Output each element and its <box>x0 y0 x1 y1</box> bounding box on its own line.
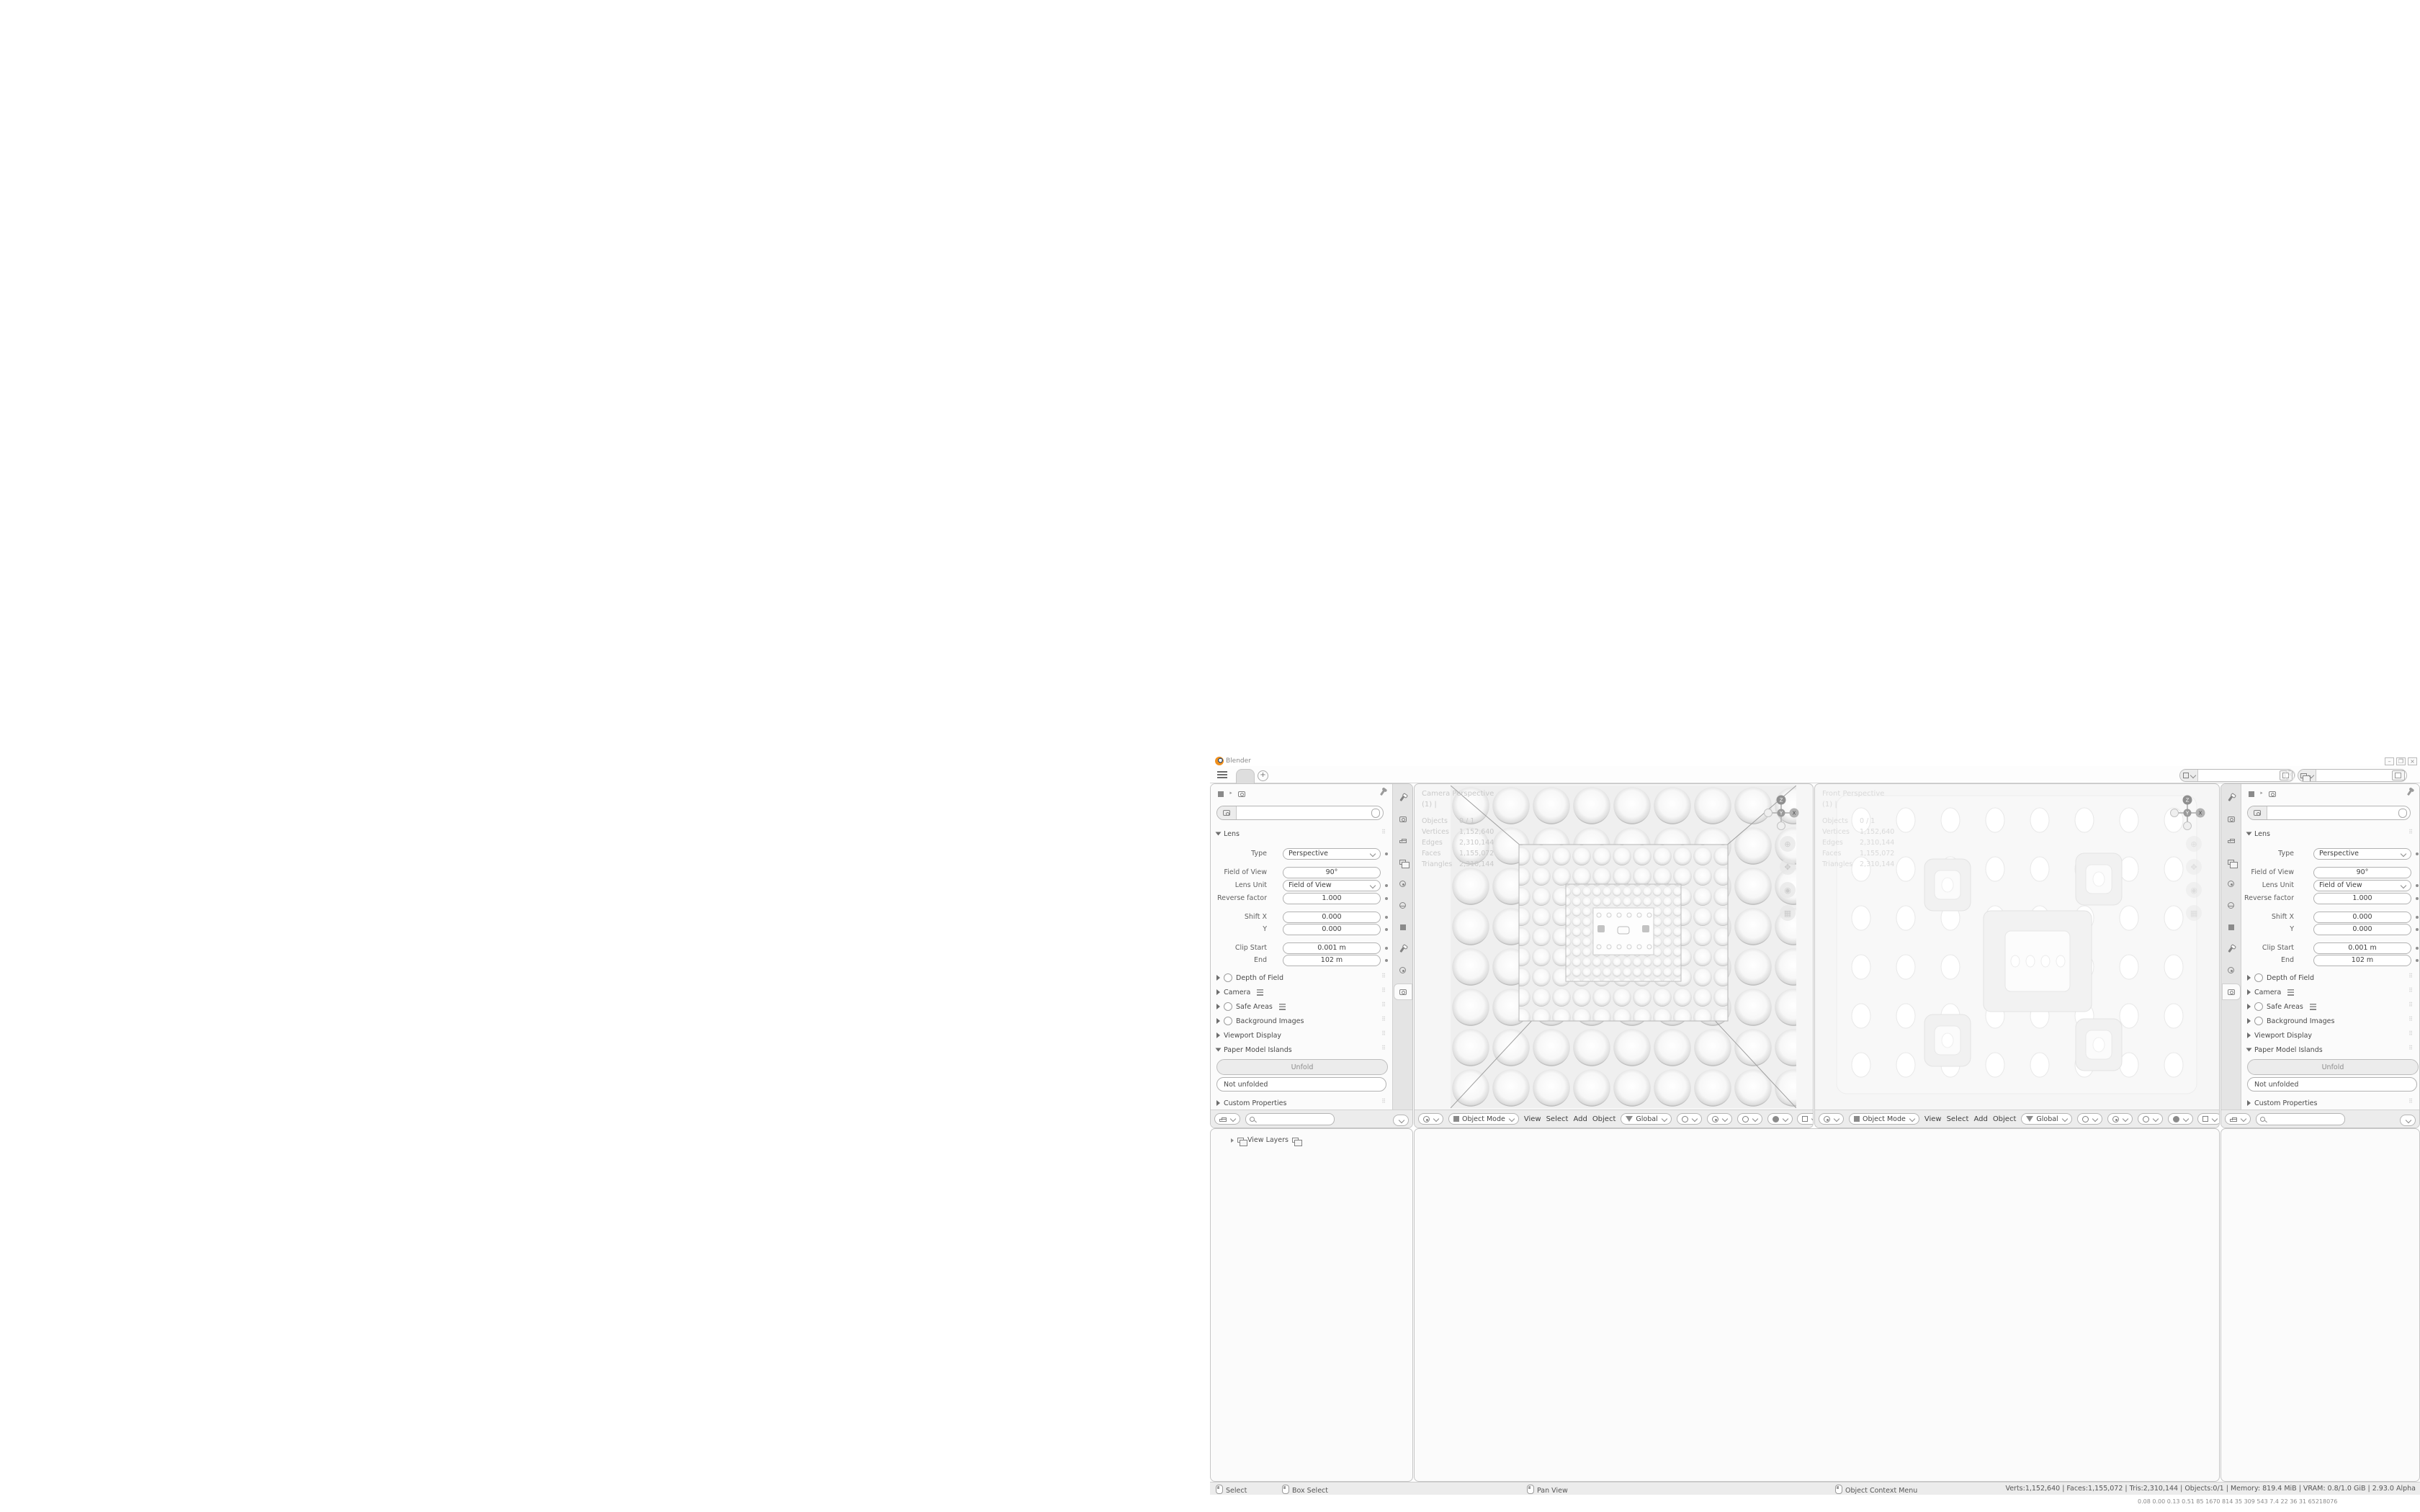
properties-tab-strip <box>2221 784 2241 1110</box>
camera-view-button-glyph: ◉ <box>2190 886 2197 895</box>
camera-data-icon <box>2269 791 2276 797</box>
expand-icon <box>2246 832 2252 836</box>
orientation-icon <box>1626 1116 1633 1122</box>
prop-label: Y <box>2241 925 2294 933</box>
workspace-tab[interactable] <box>1236 769 1255 784</box>
scene-selector[interactable] <box>2179 769 2295 782</box>
grid-ortho-button[interactable]: ▦ <box>2186 905 2202 921</box>
prop-label: Reverse factor <box>1211 894 1267 902</box>
prop-field-end[interactable]: 102 m <box>2313 955 2411 966</box>
properties-tab-output[interactable] <box>1394 833 1412 848</box>
unlink-scene-button[interactable]: × <box>2285 770 2295 780</box>
search-icon <box>2260 1117 2265 1122</box>
expand-icon <box>2247 1018 2251 1024</box>
properties-tab-object-data[interactable] <box>1394 984 1412 999</box>
orientation-label: Global <box>1636 1115 1657 1123</box>
prop-row-end: End102 m <box>2241 954 2409 966</box>
prop-label: End <box>2241 956 2294 964</box>
prop-field-field-of-view[interactable]: 90° <box>1283 867 1381 878</box>
animate-dot[interactable] <box>1385 884 1388 887</box>
prop-label: Clip Start <box>1211 944 1267 952</box>
stat-name: Triangles <box>1822 859 1860 870</box>
stat-name: Vertices <box>1822 827 1860 837</box>
animate-dot[interactable] <box>1385 916 1388 919</box>
editor-type-button[interactable] <box>1819 1113 1844 1125</box>
viewport-statistics: Objects0 / 1Vertices1,152,640Edges2,310,… <box>1422 816 1494 870</box>
mode-selector[interactable]: Object Mode <box>1448 1113 1519 1125</box>
drag-dots-icon: ⠿ <box>1381 1045 1386 1051</box>
panel-menu-icon[interactable] <box>2310 1004 2316 1010</box>
orientation-label: Global <box>2036 1115 2058 1123</box>
panel-checkbox[interactable] <box>2254 973 2263 982</box>
prop-row-type: TypePerspective <box>1211 847 1382 860</box>
view-layer-selector[interactable] <box>2298 769 2407 782</box>
prop-value: 0.000 <box>1322 925 1341 933</box>
panel-label: Depth of Field <box>2267 974 2314 982</box>
prop-label: Y <box>1211 925 1267 933</box>
quadrant-mirror-horizontal <box>0 756 1210 1512</box>
properties-tab-constraints[interactable] <box>1394 941 1412 956</box>
animate-dot[interactable] <box>2416 884 2419 887</box>
shader-node-editor <box>1414 1128 2220 1482</box>
properties-header <box>1211 1110 1412 1128</box>
prop-label: Type <box>1211 850 1267 858</box>
prop-field-end[interactable]: 102 m <box>1283 955 1381 966</box>
prop-field-reverse-factor[interactable]: 1.000 <box>1283 893 1381 904</box>
hint-pan-view: Pan View <box>1527 1485 1568 1495</box>
panel-menu-icon[interactable] <box>1279 1004 1286 1010</box>
scene-icon <box>2228 881 2234 887</box>
prop-row-type: TypePerspective <box>2241 847 2409 860</box>
scene-icon <box>1399 881 1406 887</box>
properties-tab-physics[interactable] <box>1394 963 1412 978</box>
properties-tab-scene[interactable] <box>2223 876 2240 891</box>
topbar: + × <box>1210 766 2420 783</box>
prop-field-reverse-factor[interactable]: 1.000 <box>2313 893 2411 904</box>
pivot-point-button-icon <box>1742 1116 1749 1122</box>
properties-tab-tool[interactable] <box>1394 790 1412 805</box>
animate-dot[interactable] <box>1385 959 1388 962</box>
object-icon <box>2228 924 2234 930</box>
stat-name: Edges <box>1422 837 1459 848</box>
outliner-label: View Layers <box>1247 1136 1289 1144</box>
camera-data-id-field[interactable] <box>1216 806 1384 820</box>
prop-field-y[interactable]: 0.000 <box>1283 924 1381 935</box>
prop-field-lens-unit[interactable]: Field of View <box>2313 880 2411 891</box>
view-object-types-button-icon <box>2202 1116 2208 1122</box>
expand-icon <box>1216 1048 1222 1052</box>
pan-hand-button[interactable]: ✥ <box>1780 859 1796 875</box>
prop-label: Clip Start <box>2241 944 2294 952</box>
unfold-status-field: Not unfolded <box>1216 1077 1386 1092</box>
properties-tab-object-data[interactable] <box>2223 984 2240 999</box>
properties-tab-world[interactable] <box>1394 898 1412 913</box>
close-button[interactable]: × <box>2408 757 2417 765</box>
menu-object[interactable]: Object <box>1592 1115 1616 1123</box>
viewport-canvas[interactable]: Camera Perspective(1) |Objects0 / 1Verti… <box>1415 784 1813 1110</box>
output-icon <box>1399 840 1407 843</box>
stat-line: Faces1,155,072 <box>1422 848 1494 859</box>
breadcrumb-arrow: ‣ <box>1229 790 1233 798</box>
proportional-editing-toggle[interactable] <box>1707 1113 1732 1125</box>
prop-row-clip-start: Clip Start0.001 m <box>1211 942 1382 954</box>
stat-value: 0 / 1 <box>1860 817 1875 825</box>
pin-icon[interactable] <box>2408 790 2411 798</box>
world-icon <box>1399 902 1406 909</box>
pivot-point-button-icon <box>2143 1116 2149 1122</box>
prop-row-clip-start: Clip Start0.001 m <box>2241 942 2409 954</box>
drag-dots-icon: ⠿ <box>2408 829 2414 835</box>
panel-depth-of-field[interactable]: Depth of Field <box>2247 973 2314 983</box>
editor-type-button[interactable] <box>1418 1113 1443 1125</box>
animate-dot[interactable] <box>2416 959 2419 962</box>
options-button[interactable] <box>2400 1112 2416 1126</box>
panel-depth-of-field[interactable]: Depth of Field <box>1216 973 1283 983</box>
properties-tab-tool[interactable] <box>2223 790 2240 805</box>
constraints-icon <box>1400 945 1406 953</box>
properties-tab-world[interactable] <box>2223 898 2240 913</box>
panel-label: Paper Model Islands <box>2254 1046 2323 1054</box>
pivot-point-button[interactable] <box>2138 1113 2163 1125</box>
object-data-icon <box>2228 989 2235 995</box>
orientation-icon <box>2026 1116 2033 1122</box>
prop-row-lens-unit: Lens UnitField of View <box>1211 879 1382 891</box>
menu-view[interactable]: View <box>1524 1115 1541 1123</box>
outliner-content: View Layers <box>1211 1129 1412 1481</box>
prop-row-shift-x: Shift X0.000 <box>1211 911 1382 923</box>
world-icon <box>2228 902 2234 909</box>
drag-dots-icon: ⠿ <box>1381 1016 1386 1022</box>
expand-icon <box>1216 989 1220 995</box>
stat-value: 2,310,144 <box>1860 839 1894 847</box>
prop-value: 102 m <box>2352 956 2373 964</box>
scene-icon <box>2180 770 2198 781</box>
shading-button[interactable] <box>2168 1113 2193 1125</box>
object-icon <box>1400 924 1406 930</box>
properties-tab-view-layer[interactable] <box>1394 855 1412 870</box>
panel-label: Camera <box>2254 989 2281 996</box>
camera-view-button[interactable]: ◉ <box>2186 882 2202 898</box>
expand-icon <box>1216 1032 1220 1038</box>
panel-background-images[interactable]: Background Images <box>2247 1016 2334 1026</box>
camera-view-button[interactable]: ◉ <box>1780 882 1796 898</box>
prop-value: Perspective <box>2319 850 2359 858</box>
panel-safe-areas[interactable]: Safe Areas <box>2247 1002 2316 1012</box>
navigation-gizmo[interactable]: ZXY <box>1761 793 1801 833</box>
prop-field-type[interactable]: Perspective <box>1283 848 1381 860</box>
restore-button[interactable]: ❐ <box>2396 757 2406 765</box>
panel-paper-model-islands[interactable]: Paper Model Islands <box>2247 1045 2323 1055</box>
animate-dot[interactable] <box>1385 947 1388 950</box>
pivot-point-button[interactable] <box>1737 1113 1762 1125</box>
properties-editor-left: ‣Lens⠿TypePerspectiveField of View90°Len… <box>1210 783 1413 1128</box>
stat-line: Faces1,155,072 <box>1822 848 1894 859</box>
tool-icon <box>1400 794 1406 801</box>
proportional-editing-toggle-icon <box>2112 1116 2119 1122</box>
svg-text:Z: Z <box>1780 798 1783 804</box>
quadrant-mirror-vertical <box>1210 0 2420 756</box>
prop-label: Type <box>2241 850 2294 858</box>
editor-type-button[interactable] <box>2225 1113 2251 1125</box>
prop-row-field-of-view: Field of View90° <box>2241 866 2409 878</box>
panel-checkbox[interactable] <box>1224 1002 1232 1011</box>
render-icon <box>2228 816 2235 822</box>
properties-tab-render[interactable] <box>1394 811 1412 827</box>
drag-dots-icon: ⠿ <box>1381 829 1386 835</box>
menu-add[interactable]: Add <box>1973 1115 1987 1123</box>
scene-statistics: Verts:1,152,640 | Faces:1,155,072 | Tris… <box>2005 1485 2416 1493</box>
panel-checkbox[interactable] <box>2254 1002 2263 1011</box>
viewport-collection-label: (1) | <box>1422 799 1494 810</box>
zoom-button-glyph: ⊕ <box>2190 840 2197 849</box>
navigation-gizmo[interactable]: ZXY <box>2167 793 2208 833</box>
stat-name: Triangles <box>1422 859 1459 870</box>
status-bar: Select Box Select Pan View Object Contex… <box>1210 1482 2420 1495</box>
viewport-view-label: Camera Perspective <box>1422 788 1494 799</box>
panel-checkbox[interactable] <box>1224 1017 1232 1025</box>
expand-icon <box>2247 1004 2251 1009</box>
expand-icon <box>2247 989 2251 995</box>
stat-line: Objects0 / 1 <box>1822 816 1894 827</box>
properties-search-input[interactable] <box>1245 1113 1335 1125</box>
tool-icon <box>2228 794 2234 801</box>
zoom-button[interactable]: ⊕ <box>2186 836 2202 852</box>
menu-hamburger-icon[interactable] <box>1217 771 1227 778</box>
snapping-toggle[interactable] <box>1677 1113 1702 1125</box>
new-view-layer-button[interactable] <box>2392 770 2405 780</box>
panel-viewport-display[interactable]: Viewport Display <box>1216 1030 1281 1040</box>
prop-value: 0.001 m <box>2348 944 2376 952</box>
camera-data-icon <box>1238 791 1245 797</box>
proportional-editing-toggle[interactable] <box>2107 1113 2133 1125</box>
pan-hand-button[interactable]: ✥ <box>2186 859 2202 875</box>
hint-select: Select <box>1216 1485 1247 1495</box>
panel-label: Paper Model Islands <box>1224 1046 1292 1054</box>
orientation-selector[interactable]: Global <box>2021 1113 2071 1125</box>
properties-tab-physics[interactable] <box>2223 963 2240 978</box>
object-data-icon <box>1399 989 1407 995</box>
mode-selector[interactable]: Object Mode <box>1849 1113 1919 1125</box>
panel-label: Camera <box>1224 989 1250 996</box>
properties-tab-render[interactable] <box>2223 811 2240 827</box>
animate-dot[interactable] <box>2416 928 2419 931</box>
prop-row-lens-unit: Lens UnitField of View <box>2241 879 2409 891</box>
prop-field-type[interactable]: Perspective <box>2313 848 2411 860</box>
viewport-camera: Camera Perspective(1) |Objects0 / 1Verti… <box>1414 783 1814 1128</box>
zoom-button[interactable]: ⊕ <box>1780 836 1796 852</box>
prop-value: 0.000 <box>1322 913 1341 921</box>
fake-user-icon <box>2398 809 2407 818</box>
panel-paper-model-islands[interactable]: Paper Model Islands <box>1216 1045 1292 1055</box>
expand-icon <box>2247 975 2251 981</box>
stat-name: Faces <box>1822 848 1860 859</box>
blender-logo-icon <box>1215 757 1224 765</box>
properties-tab-output[interactable] <box>2223 833 2240 848</box>
properties-tab-strip <box>1392 784 1412 1110</box>
panel-viewport-display[interactable]: Viewport Display <box>2247 1030 2312 1040</box>
drag-dots-icon: ⠿ <box>2408 1030 2414 1037</box>
prop-field-clip-start[interactable]: 0.001 m <box>2313 942 2411 954</box>
drag-dots-icon: ⠿ <box>1381 1002 1386 1008</box>
output-icon <box>2228 840 2235 843</box>
prop-value: 90° <box>2357 868 2369 876</box>
physics-icon <box>1399 967 1406 973</box>
system-monitor-text: 0.08 0.00 0.13 0.51 85 1670 814 35 309 5… <box>2138 1498 2337 1505</box>
render-icon <box>1399 816 1407 822</box>
panel-lens[interactable]: Lens <box>1216 829 1240 839</box>
panel-background-images[interactable]: Background Images <box>1216 1016 1304 1026</box>
prop-row-y: Y0.000 <box>2241 923 2409 935</box>
expand-icon <box>1216 832 1222 836</box>
editor-type-button[interactable] <box>1214 1113 1240 1125</box>
grid-ortho-button[interactable]: ▦ <box>1780 905 1796 921</box>
panel-camera[interactable]: Camera <box>1216 987 1263 997</box>
panel-label: Depth of Field <box>1236 974 1283 982</box>
view-object-types-button-icon <box>1802 1116 1808 1122</box>
panel-custom-properties[interactable]: Custom Properties <box>1216 1098 1286 1108</box>
drag-dots-icon: ⠿ <box>1381 987 1386 994</box>
animate-dot[interactable] <box>1385 897 1388 900</box>
stat-value: 1,155,072 <box>1860 850 1894 858</box>
panel-label: Custom Properties <box>1224 1099 1286 1107</box>
fake-user-icon <box>1371 809 1380 818</box>
mode-label: Object Mode <box>1863 1115 1906 1123</box>
prop-field-shift-x[interactable]: 0.000 <box>2313 912 2411 923</box>
prop-row-end: End102 m <box>1211 954 1382 966</box>
unfold-status-field: Not unfolded <box>2247 1077 2417 1092</box>
view-object-types-button[interactable] <box>1797 1113 1814 1125</box>
object-mode-icon <box>1453 1116 1459 1122</box>
unfold-button[interactable]: Unfold <box>2247 1059 2419 1075</box>
viewport-overlay-text: Front Perspective(1) |Objects0 / 1Vertic… <box>1822 788 1894 870</box>
stat-line: Objects0 / 1 <box>1422 816 1494 827</box>
object-icon <box>2249 791 2254 797</box>
prop-label: Field of View <box>1211 868 1267 876</box>
physics-icon <box>2228 967 2234 973</box>
menu-select[interactable]: Select <box>1947 1115 1969 1123</box>
expand-icon <box>2247 1100 2251 1106</box>
panel-label: Safe Areas <box>1236 1003 1273 1011</box>
animate-dot[interactable] <box>1385 852 1388 855</box>
view-layer-icon <box>1399 860 1406 865</box>
menu-view[interactable]: View <box>1924 1115 1942 1123</box>
animate-dot[interactable] <box>2416 852 2419 855</box>
prop-field-clip-start[interactable]: 0.001 m <box>1283 942 1381 954</box>
outliner-row-view-layers[interactable]: View Layers <box>1211 1134 1412 1146</box>
prop-field-field-of-view[interactable]: 90° <box>2313 867 2411 878</box>
minimize-button[interactable]: – <box>2385 757 2394 765</box>
options-button[interactable] <box>1393 1112 1409 1126</box>
prop-row-shift-x: Shift X0.000 <box>2241 911 2409 923</box>
prop-label: Lens Unit <box>2241 881 2294 889</box>
prop-value: 1.000 <box>2352 894 2372 902</box>
pan-hand-button-glyph: ✥ <box>1784 863 1791 872</box>
properties-tab-object[interactable] <box>2223 919 2240 935</box>
prop-field-y[interactable]: 0.000 <box>2313 924 2411 935</box>
panel-lens[interactable]: Lens <box>2247 829 2270 839</box>
stat-value: 2,310,144 <box>1459 839 1494 847</box>
mode-label: Object Mode <box>1462 1115 1505 1123</box>
menu-object[interactable]: Object <box>1993 1115 2017 1123</box>
svg-text:Y: Y <box>1779 811 1783 816</box>
window-controls: – ❐ × <box>2385 757 2417 765</box>
animate-dot[interactable] <box>2416 916 2419 919</box>
view-layer-icon <box>1237 1138 1244 1143</box>
unfold-button[interactable]: Unfold <box>1216 1059 1388 1075</box>
pan-hand-button-glyph: ✥ <box>2190 863 2197 872</box>
prop-label: Shift X <box>1211 913 1267 921</box>
prop-label: Lens Unit <box>1211 881 1267 889</box>
zoom-button-glyph: ⊕ <box>1784 840 1791 849</box>
orientation-selector[interactable]: Global <box>1621 1113 1671 1125</box>
prop-field-lens-unit[interactable]: Field of View <box>1283 880 1381 891</box>
drag-dots-icon: ⠿ <box>2408 1098 2414 1104</box>
quadrant-mirror-both <box>0 0 1210 756</box>
stat-name: Edges <box>1822 837 1860 848</box>
properties-tab-view-layer[interactable] <box>2223 855 2240 870</box>
panel-custom-properties[interactable]: Custom Properties <box>2247 1098 2317 1108</box>
view-layer-button-icon <box>1292 1138 1299 1143</box>
stat-line: Triangles2,310,144 <box>1822 859 1894 870</box>
snapping-toggle-icon <box>2082 1116 2089 1122</box>
panel-camera[interactable]: Camera <box>2247 987 2294 997</box>
panel-menu-icon[interactable] <box>2287 989 2294 996</box>
search-icon <box>1250 1117 1255 1122</box>
properties-tab-constraints[interactable] <box>2223 941 2240 956</box>
stat-line: Edges2,310,144 <box>1422 837 1494 848</box>
menu-add[interactable]: Add <box>1573 1115 1587 1123</box>
properties-header <box>2221 1110 2419 1128</box>
properties-tab-object[interactable] <box>1394 919 1412 935</box>
shading-button[interactable] <box>1767 1113 1793 1125</box>
panel-checkbox[interactable] <box>1224 973 1232 982</box>
outliner-left: View Layers <box>1210 1128 1413 1482</box>
prop-value: Field of View <box>2319 881 2362 889</box>
viewport-canvas[interactable]: Front Perspective(1) |Objects0 / 1Vertic… <box>1815 784 2219 1110</box>
expand-icon <box>1216 1004 1220 1009</box>
proportional-editing-toggle-icon <box>1712 1116 1718 1122</box>
properties-tab-scene[interactable] <box>1394 876 1412 891</box>
properties-editor-right: ‣Lens⠿TypePerspectiveField of View90°Len… <box>2220 783 2420 1128</box>
viewport-header: Object ModeViewSelectAddObjectGlobal <box>1415 1110 1813 1128</box>
svg-text:X: X <box>2199 811 2202 816</box>
object-mode-icon <box>1854 1116 1860 1122</box>
animate-dot[interactable] <box>1385 928 1388 931</box>
snapping-toggle[interactable] <box>2077 1113 2102 1125</box>
viewport-front: Front Perspective(1) |Objects0 / 1Vertic… <box>1814 783 2220 1128</box>
editor-type-button-icon <box>1824 1116 1830 1122</box>
panel-menu-icon[interactable] <box>1257 989 1263 996</box>
stat-line: Vertices1,152,640 <box>1422 827 1494 837</box>
prop-value: 0.001 m <box>1317 944 1345 952</box>
add-workspace-button[interactable]: + <box>1258 770 1268 781</box>
view-object-types-button[interactable] <box>2197 1113 2220 1125</box>
prop-field-shift-x[interactable]: 0.000 <box>1283 912 1381 923</box>
panel-safe-areas[interactable]: Safe Areas <box>1216 1002 1286 1012</box>
menu-select[interactable]: Select <box>1546 1115 1569 1123</box>
panel-checkbox[interactable] <box>2254 1017 2263 1025</box>
animate-dot[interactable] <box>2416 947 2419 950</box>
properties-search-input[interactable] <box>2256 1113 2345 1125</box>
quadrant-original: Blender – ❐ × + × <box>1210 756 2420 1512</box>
expand-icon <box>2247 1032 2251 1038</box>
desktop-taskbar-strip: 0.08 0.00 0.13 0.51 85 1670 814 35 309 5… <box>1210 1495 2420 1512</box>
outliner-right <box>2220 1128 2420 1482</box>
camera-data-id-field[interactable] <box>2247 806 2411 820</box>
pin-icon[interactable] <box>1381 790 1384 798</box>
animate-dot[interactable] <box>2416 897 2419 900</box>
header-right-group <box>1767 1113 1814 1125</box>
